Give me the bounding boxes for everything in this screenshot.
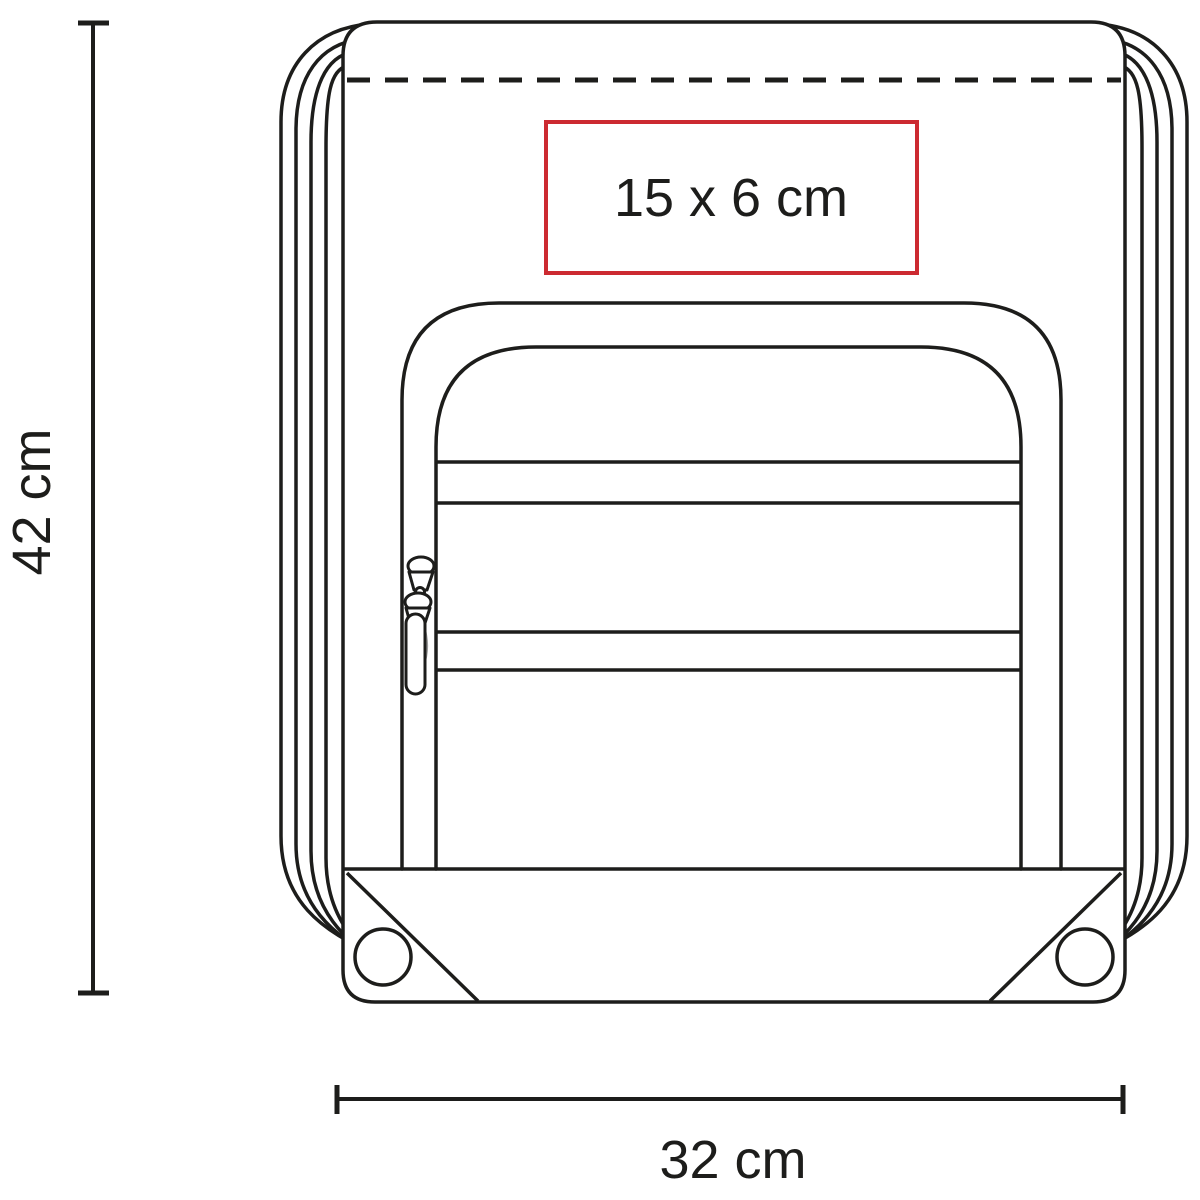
diagram-canvas: 42 cm 32 cm [0,0,1200,1200]
height-dimension-label: 42 cm [2,428,62,575]
width-dimension: 32 cm [337,1085,1123,1190]
print-area-label: 15 x 6 cm [614,168,848,228]
zipper-pull-tab [406,614,426,694]
product-spec-diagram: 42 cm 32 cm [0,0,1200,1200]
height-dimension: 42 cm [2,23,109,993]
width-dimension-label: 32 cm [659,1130,806,1190]
